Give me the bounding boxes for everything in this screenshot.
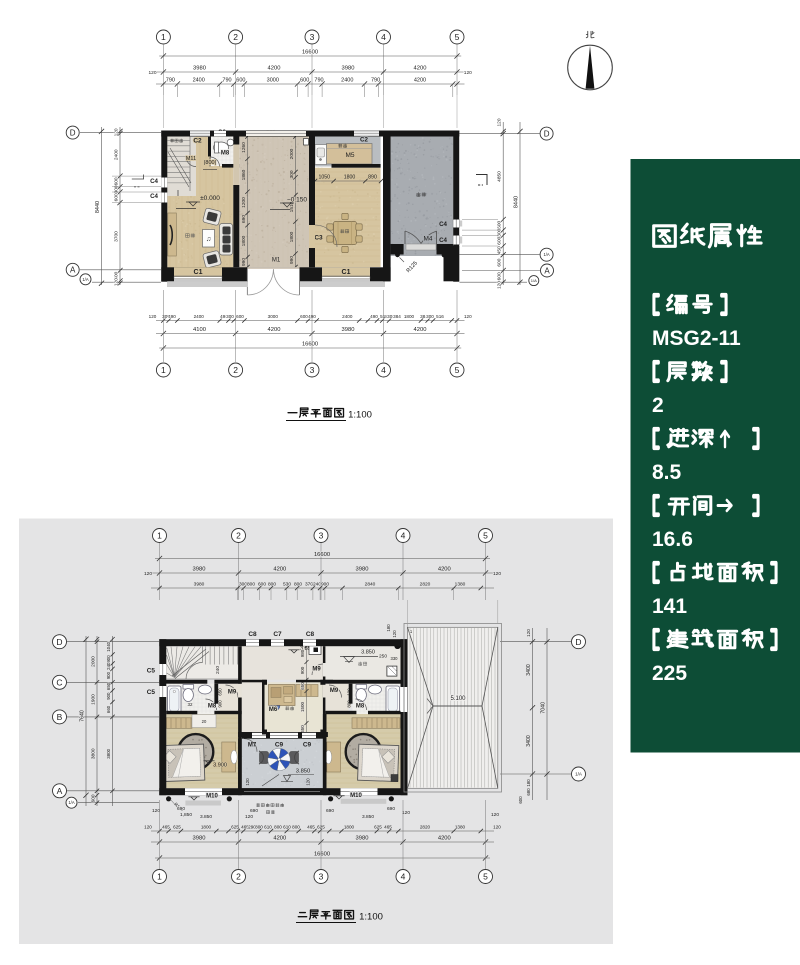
svg-text:3980: 3980 xyxy=(356,835,369,841)
svg-text:3.900: 3.900 xyxy=(213,763,227,769)
svg-text:M10: M10 xyxy=(206,794,218,800)
svg-text:120: 120 xyxy=(148,70,156,76)
svg-text:1/A: 1/A xyxy=(531,278,537,283)
svg-text:5: 5 xyxy=(455,365,460,375)
svg-text:2: 2 xyxy=(652,394,664,417)
svg-text:180: 180 xyxy=(386,624,391,632)
svg-text:1860: 1860 xyxy=(241,169,247,180)
svg-text:890: 890 xyxy=(368,174,377,180)
svg-text:±0.000: ±0.000 xyxy=(200,195,220,202)
svg-text:C4: C4 xyxy=(439,237,447,244)
svg-text:600: 600 xyxy=(236,77,245,83)
svg-text:4200: 4200 xyxy=(273,835,286,841)
svg-text:120: 120 xyxy=(245,814,253,820)
svg-text:C4: C4 xyxy=(150,178,158,185)
svg-text:990: 990 xyxy=(289,256,295,264)
svg-text:16600: 16600 xyxy=(302,49,318,55)
svg-text:MSG2-11: MSG2-11 xyxy=(652,327,741,350)
svg-text:2400: 2400 xyxy=(342,314,353,319)
svg-text:141: 141 xyxy=(652,595,687,618)
svg-text:3980: 3980 xyxy=(342,65,355,71)
svg-text:650: 650 xyxy=(106,682,111,690)
svg-text:465: 465 xyxy=(307,824,315,829)
svg-text:600: 600 xyxy=(113,193,119,201)
svg-text:4: 4 xyxy=(401,531,406,541)
svg-text:7640: 7640 xyxy=(79,710,85,722)
svg-text:600: 600 xyxy=(258,581,266,587)
svg-text:16600: 16600 xyxy=(314,851,330,857)
svg-text:690: 690 xyxy=(387,806,395,812)
svg-text:600: 600 xyxy=(497,220,503,228)
svg-text:M6: M6 xyxy=(269,707,278,713)
svg-text:180: 180 xyxy=(526,779,531,787)
svg-text:C5: C5 xyxy=(147,668,156,675)
svg-text:M8: M8 xyxy=(356,704,365,710)
svg-text:800: 800 xyxy=(274,824,282,829)
svg-text:625: 625 xyxy=(374,824,382,829)
svg-text:490: 490 xyxy=(370,314,378,319)
svg-text:8.5: 8.5 xyxy=(652,461,682,484)
svg-text:C9: C9 xyxy=(303,742,312,749)
svg-text:1/A: 1/A xyxy=(82,277,88,282)
svg-text:2400: 2400 xyxy=(193,77,205,83)
svg-text:3700: 3700 xyxy=(113,231,119,242)
svg-text:3.850: 3.850 xyxy=(361,650,375,656)
svg-text:3980: 3980 xyxy=(342,327,355,333)
svg-text:C8: C8 xyxy=(248,631,257,638)
svg-text:120: 120 xyxy=(144,571,152,577)
svg-text:4: 4 xyxy=(401,872,406,882)
svg-text:4200: 4200 xyxy=(438,835,451,841)
svg-text:465: 465 xyxy=(384,824,392,829)
svg-text:660: 660 xyxy=(106,705,111,713)
svg-text:2: 2 xyxy=(233,32,238,42)
svg-text:1,850: 1,850 xyxy=(180,812,192,818)
svg-text:120: 120 xyxy=(497,281,503,289)
svg-text:D: D xyxy=(544,130,550,139)
svg-text:790: 790 xyxy=(166,77,175,83)
svg-text:800: 800 xyxy=(294,581,302,587)
svg-text:120: 120 xyxy=(392,630,397,638)
svg-text:M10: M10 xyxy=(350,793,362,799)
svg-text:1800: 1800 xyxy=(201,824,212,829)
svg-text:3: 3 xyxy=(310,32,315,42)
svg-text:120: 120 xyxy=(493,824,501,829)
svg-text:610: 610 xyxy=(264,824,272,829)
svg-text:16.6: 16.6 xyxy=(652,528,693,551)
svg-text:120: 120 xyxy=(306,778,311,786)
svg-text:C7: C7 xyxy=(273,631,282,638)
svg-text:120: 120 xyxy=(152,808,160,814)
svg-text:490: 490 xyxy=(168,314,176,319)
svg-text:A: A xyxy=(70,266,76,275)
svg-text:650: 650 xyxy=(300,682,305,690)
svg-text:600: 600 xyxy=(236,314,244,319)
svg-text:1:100: 1:100 xyxy=(359,912,383,923)
svg-text:120: 120 xyxy=(526,629,531,637)
svg-text:120: 120 xyxy=(497,118,503,126)
svg-text:600: 600 xyxy=(90,794,96,802)
svg-text:3000: 3000 xyxy=(268,314,279,319)
svg-text:1/A: 1/A xyxy=(575,772,582,777)
svg-text:3: 3 xyxy=(319,531,324,541)
svg-text:680: 680 xyxy=(526,788,531,796)
svg-text:4200: 4200 xyxy=(414,77,426,83)
svg-text:1: 1 xyxy=(157,531,162,541)
svg-text:M5: M5 xyxy=(345,152,354,159)
svg-text:R125: R125 xyxy=(406,260,419,274)
svg-text:C4: C4 xyxy=(150,193,158,200)
svg-text:3980: 3980 xyxy=(356,566,369,572)
svg-text:4: 4 xyxy=(381,365,386,375)
svg-text:610: 610 xyxy=(283,824,291,829)
svg-text:1/A: 1/A xyxy=(68,800,74,805)
svg-text:16600: 16600 xyxy=(302,341,318,347)
svg-text:990: 990 xyxy=(241,258,247,266)
svg-text:M4: M4 xyxy=(423,236,432,243)
svg-text:C5: C5 xyxy=(147,689,156,696)
svg-text:900: 900 xyxy=(218,700,223,708)
svg-text:600: 600 xyxy=(113,177,119,185)
svg-text:5: 5 xyxy=(483,872,488,882)
svg-text:516: 516 xyxy=(436,314,444,319)
svg-text:1500: 1500 xyxy=(300,701,305,712)
svg-text:900: 900 xyxy=(321,581,329,587)
svg-text:3: 3 xyxy=(319,872,324,882)
svg-text:3000: 3000 xyxy=(267,77,279,83)
svg-text:16600: 16600 xyxy=(314,552,330,558)
svg-text:690: 690 xyxy=(326,808,334,814)
svg-text:600: 600 xyxy=(518,796,523,804)
svg-text:3: 3 xyxy=(310,365,315,375)
svg-text:3980: 3980 xyxy=(193,835,206,841)
svg-text:1900: 1900 xyxy=(90,694,96,705)
svg-text:300: 300 xyxy=(426,314,434,319)
svg-text:120: 120 xyxy=(464,314,472,319)
svg-text:2840: 2840 xyxy=(365,581,376,587)
svg-text:1040: 1040 xyxy=(106,641,111,651)
svg-text:2820: 2820 xyxy=(420,824,431,829)
svg-text:3800: 3800 xyxy=(106,748,111,758)
svg-text:225: 225 xyxy=(652,662,687,685)
svg-text:5: 5 xyxy=(483,531,488,541)
svg-text:1:100: 1:100 xyxy=(348,410,372,421)
svg-text:900: 900 xyxy=(106,692,111,700)
svg-text:600: 600 xyxy=(300,77,309,83)
svg-text:B: B xyxy=(57,712,63,722)
svg-text:300: 300 xyxy=(289,170,295,178)
svg-text:2400: 2400 xyxy=(341,77,353,83)
svg-text:800: 800 xyxy=(268,581,276,587)
svg-text:690: 690 xyxy=(177,806,185,812)
svg-text:4200: 4200 xyxy=(414,65,427,71)
svg-text:790: 790 xyxy=(222,77,231,83)
svg-text:1: 1 xyxy=(161,32,166,42)
svg-text:3980: 3980 xyxy=(193,65,206,71)
svg-text:625: 625 xyxy=(173,824,181,829)
svg-text:1800: 1800 xyxy=(344,824,355,829)
svg-text:3400: 3400 xyxy=(526,664,532,676)
svg-text:2820: 2820 xyxy=(420,581,431,587)
svg-text:3980: 3980 xyxy=(194,581,205,587)
svg-text:3.850: 3.850 xyxy=(362,814,374,820)
svg-text:8440: 8440 xyxy=(95,201,101,213)
svg-text:8440: 8440 xyxy=(513,196,519,208)
svg-text:2400: 2400 xyxy=(194,314,205,319)
svg-text:800: 800 xyxy=(255,824,263,829)
svg-text:600: 600 xyxy=(300,314,308,319)
svg-text:1200: 1200 xyxy=(241,197,247,208)
svg-text:D: D xyxy=(575,637,581,647)
svg-text:D: D xyxy=(56,637,62,647)
svg-text:980: 980 xyxy=(300,649,305,657)
svg-text:450: 450 xyxy=(497,246,503,254)
svg-text:3980: 3980 xyxy=(193,566,206,572)
svg-text:C8: C8 xyxy=(306,631,315,638)
svg-text:300: 300 xyxy=(226,314,234,319)
svg-text:M9: M9 xyxy=(228,690,237,696)
svg-text:2: 2 xyxy=(236,531,241,541)
svg-text:4850: 4850 xyxy=(497,171,503,182)
svg-text:625: 625 xyxy=(231,824,239,829)
svg-text:4: 4 xyxy=(381,32,386,42)
svg-text:240: 240 xyxy=(106,662,111,670)
svg-text:530: 530 xyxy=(283,581,291,587)
svg-text:−0.150: −0.150 xyxy=(287,197,307,204)
svg-text:M1: M1 xyxy=(272,258,281,264)
svg-text:|800|: |800| xyxy=(204,160,216,166)
svg-text:2: 2 xyxy=(233,365,238,375)
svg-text:650: 650 xyxy=(300,725,305,733)
svg-text:C2: C2 xyxy=(193,138,202,145)
svg-text:330: 330 xyxy=(391,656,399,661)
svg-text:2000: 2000 xyxy=(90,656,96,667)
svg-text:465: 465 xyxy=(162,824,170,829)
svg-text:5.100: 5.100 xyxy=(450,696,466,702)
svg-text:600: 600 xyxy=(497,258,503,266)
svg-text:790: 790 xyxy=(371,77,380,83)
svg-text:5: 5 xyxy=(455,32,460,42)
svg-text:4200: 4200 xyxy=(414,327,427,333)
svg-text:3400: 3400 xyxy=(526,735,532,747)
svg-text:32: 32 xyxy=(187,702,193,707)
svg-text:M11: M11 xyxy=(186,156,196,162)
svg-text:790: 790 xyxy=(314,77,323,83)
svg-text:120: 120 xyxy=(113,128,119,136)
svg-text:D: D xyxy=(70,129,76,138)
svg-text:1800: 1800 xyxy=(241,235,247,246)
svg-text:4200: 4200 xyxy=(273,566,286,572)
svg-text:650: 650 xyxy=(218,688,223,696)
svg-text:C: C xyxy=(56,677,62,687)
svg-text:A: A xyxy=(544,266,550,275)
svg-text:1: 1 xyxy=(157,872,162,882)
svg-text:7040: 7040 xyxy=(540,702,546,714)
svg-text:1380: 1380 xyxy=(455,581,466,587)
svg-text:900: 900 xyxy=(106,655,111,663)
svg-text:3.850: 3.850 xyxy=(200,814,212,820)
svg-text:C3: C3 xyxy=(314,235,323,242)
svg-text:20: 20 xyxy=(202,719,207,724)
svg-text:C4: C4 xyxy=(439,221,447,228)
svg-text:120: 120 xyxy=(144,824,152,829)
svg-text:4200: 4200 xyxy=(268,65,281,71)
svg-text:800: 800 xyxy=(292,824,300,829)
svg-text:4100: 4100 xyxy=(193,327,206,333)
svg-text:800: 800 xyxy=(247,581,255,587)
svg-text:A: A xyxy=(57,786,63,796)
svg-text:3800: 3800 xyxy=(90,748,96,759)
svg-text:690: 690 xyxy=(241,215,247,223)
svg-text:120: 120 xyxy=(493,571,501,577)
svg-text:M9: M9 xyxy=(312,667,321,673)
svg-text:4200: 4200 xyxy=(268,327,281,333)
svg-text:4200: 4200 xyxy=(438,566,451,572)
svg-text:C1: C1 xyxy=(342,269,351,276)
svg-text:120: 120 xyxy=(245,778,250,786)
svg-text:1800: 1800 xyxy=(344,174,356,180)
svg-text:1: 1 xyxy=(161,365,166,375)
svg-text:900: 900 xyxy=(106,671,111,679)
svg-text:120: 120 xyxy=(491,812,499,818)
svg-text:1050: 1050 xyxy=(319,174,331,180)
svg-text:120: 120 xyxy=(149,314,157,319)
svg-text:M8: M8 xyxy=(208,704,217,710)
svg-text:2: 2 xyxy=(236,872,241,882)
svg-text:690: 690 xyxy=(250,808,258,814)
svg-text:120: 120 xyxy=(464,70,472,76)
svg-text:1/A: 1/A xyxy=(543,252,549,257)
svg-text:M9: M9 xyxy=(330,688,339,694)
svg-text:250: 250 xyxy=(379,654,387,660)
svg-text:C9: C9 xyxy=(275,742,284,749)
svg-text:120: 120 xyxy=(113,278,119,286)
svg-text:2400: 2400 xyxy=(113,149,119,160)
svg-text:C2: C2 xyxy=(360,137,368,144)
svg-text:1260: 1260 xyxy=(241,142,247,153)
svg-text:♫: ♫ xyxy=(206,236,211,243)
svg-text:M8: M8 xyxy=(221,151,230,157)
svg-text:600: 600 xyxy=(497,236,503,244)
svg-text:384: 384 xyxy=(393,314,401,319)
svg-text:900: 900 xyxy=(300,666,305,674)
svg-text:240: 240 xyxy=(215,666,221,674)
svg-text:1380: 1380 xyxy=(455,824,466,829)
svg-text:1800: 1800 xyxy=(404,314,415,319)
svg-text:600: 600 xyxy=(497,272,503,280)
svg-text:C1: C1 xyxy=(194,269,203,276)
svg-text:2000: 2000 xyxy=(289,148,295,159)
svg-text:3.850: 3.850 xyxy=(296,769,311,775)
svg-text:1800: 1800 xyxy=(289,231,295,242)
